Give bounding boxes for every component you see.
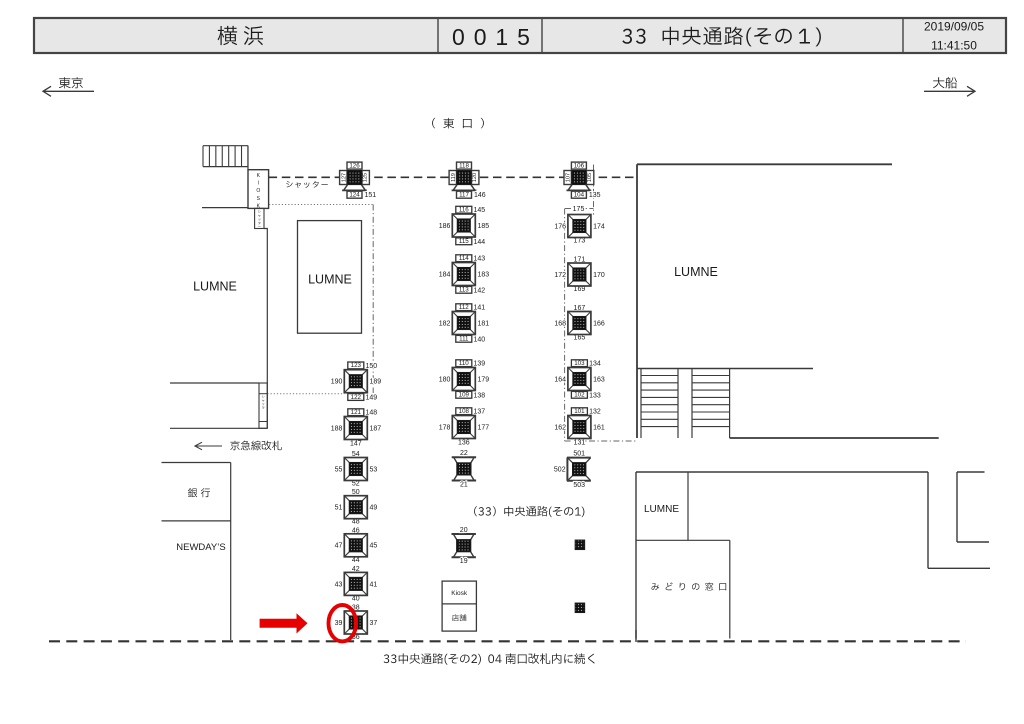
svg-text:S: S <box>257 196 261 202</box>
svg-text:175: 175 <box>573 206 585 213</box>
svg-text:2019/09/05: 2019/09/05 <box>924 20 984 34</box>
svg-text:121: 121 <box>351 409 362 416</box>
svg-text:115: 115 <box>459 238 469 245</box>
svg-text:146: 146 <box>474 192 486 199</box>
svg-text:113: 113 <box>459 287 469 294</box>
svg-text:123: 123 <box>351 362 362 369</box>
svg-text:131: 131 <box>574 440 586 447</box>
svg-text:181: 181 <box>478 320 490 327</box>
svg-text:LUMNE: LUMNE <box>193 280 237 294</box>
svg-text:111: 111 <box>459 336 469 343</box>
svg-text:138: 138 <box>474 392 486 399</box>
svg-text:55: 55 <box>335 466 343 473</box>
svg-text:165: 165 <box>574 335 586 342</box>
svg-text:117: 117 <box>459 191 469 198</box>
svg-text:124: 124 <box>349 191 360 198</box>
svg-text:108: 108 <box>459 408 470 415</box>
svg-text:188: 188 <box>331 425 343 432</box>
svg-text:37: 37 <box>370 620 378 627</box>
svg-text:151: 151 <box>365 192 377 199</box>
svg-text:I: I <box>258 181 259 187</box>
svg-text:LUMNE: LUMNE <box>308 273 352 287</box>
svg-text:114: 114 <box>459 255 469 262</box>
svg-text:189: 189 <box>370 379 382 386</box>
svg-text:44: 44 <box>352 557 360 564</box>
svg-text:41: 41 <box>370 581 378 588</box>
svg-text:NEWDAY’S: NEWDAY’S <box>176 542 225 553</box>
svg-text:170: 170 <box>593 272 605 279</box>
svg-text:502: 502 <box>554 467 566 474</box>
svg-text:110: 110 <box>459 360 469 367</box>
svg-text:503: 503 <box>573 482 585 489</box>
svg-text:48: 48 <box>352 519 360 526</box>
svg-text:19: 19 <box>460 558 468 565</box>
svg-text:164: 164 <box>554 376 566 383</box>
svg-text:190: 190 <box>331 379 343 386</box>
svg-text:40: 40 <box>352 595 360 602</box>
svg-text:178: 178 <box>439 424 451 431</box>
svg-text:Kiosk: Kiosk <box>451 590 468 597</box>
svg-text:0015: 0015 <box>452 24 539 50</box>
svg-text:140: 140 <box>474 336 486 343</box>
svg-text:126: 126 <box>349 162 360 169</box>
svg-text:52: 52 <box>352 481 360 488</box>
svg-text:163: 163 <box>593 376 605 383</box>
svg-text:109: 109 <box>459 392 470 399</box>
svg-text:184: 184 <box>439 271 451 278</box>
svg-text:120: 120 <box>472 173 478 182</box>
svg-text:168: 168 <box>554 320 566 327</box>
svg-text:176: 176 <box>554 223 566 230</box>
svg-text:174: 174 <box>593 223 605 230</box>
svg-text:183: 183 <box>478 271 490 278</box>
svg-text:501: 501 <box>573 451 585 458</box>
svg-text:172: 172 <box>554 272 566 279</box>
svg-text:K: K <box>257 173 261 179</box>
svg-text:47: 47 <box>335 543 343 550</box>
svg-text:51: 51 <box>335 505 343 512</box>
svg-text:149: 149 <box>366 395 378 402</box>
svg-text:101: 101 <box>574 408 585 415</box>
svg-text:150: 150 <box>366 363 378 370</box>
svg-text:169: 169 <box>574 286 586 293</box>
svg-text:133: 133 <box>589 392 601 399</box>
svg-text:136: 136 <box>458 440 470 447</box>
svg-text:LUMNE: LUMNE <box>644 504 679 515</box>
svg-text:11:41:50: 11:41:50 <box>931 39 977 53</box>
svg-text:107: 107 <box>566 173 572 182</box>
svg-text:142: 142 <box>474 287 486 294</box>
svg-text:135: 135 <box>589 192 601 199</box>
svg-text:43: 43 <box>335 581 343 588</box>
svg-text:20: 20 <box>460 527 468 534</box>
svg-text:145: 145 <box>474 207 486 214</box>
svg-text:116: 116 <box>459 207 469 214</box>
svg-text:104: 104 <box>574 191 585 198</box>
svg-text:182: 182 <box>439 320 451 327</box>
svg-text:103: 103 <box>574 360 585 367</box>
svg-text:186: 186 <box>439 223 451 230</box>
svg-text:119: 119 <box>451 173 457 182</box>
svg-text:49: 49 <box>370 505 378 512</box>
svg-text:112: 112 <box>459 304 469 311</box>
svg-text:125: 125 <box>363 173 369 182</box>
svg-text:144: 144 <box>474 239 486 246</box>
svg-text:118: 118 <box>459 162 469 169</box>
svg-text:LUMNE: LUMNE <box>674 265 718 279</box>
svg-text:106: 106 <box>574 162 585 169</box>
svg-text:39: 39 <box>335 620 343 627</box>
svg-text:166: 166 <box>593 320 605 327</box>
svg-text:173: 173 <box>574 238 586 245</box>
svg-text:177: 177 <box>478 424 490 431</box>
svg-text:185: 185 <box>478 223 490 230</box>
svg-text:162: 162 <box>554 424 566 431</box>
svg-text:22: 22 <box>460 450 468 457</box>
svg-text:105: 105 <box>587 173 593 182</box>
svg-text:21: 21 <box>460 481 468 488</box>
svg-text:O: O <box>256 188 260 194</box>
svg-text:45: 45 <box>370 543 378 550</box>
svg-text:180: 180 <box>439 376 451 383</box>
svg-text:161: 161 <box>593 424 605 431</box>
svg-text:187: 187 <box>370 425 382 432</box>
svg-text:179: 179 <box>478 376 490 383</box>
svg-text:102: 102 <box>574 392 585 399</box>
svg-text:122: 122 <box>351 394 362 401</box>
svg-text:53: 53 <box>370 466 378 473</box>
svg-text:127: 127 <box>341 173 347 182</box>
svg-text:147: 147 <box>350 441 362 448</box>
